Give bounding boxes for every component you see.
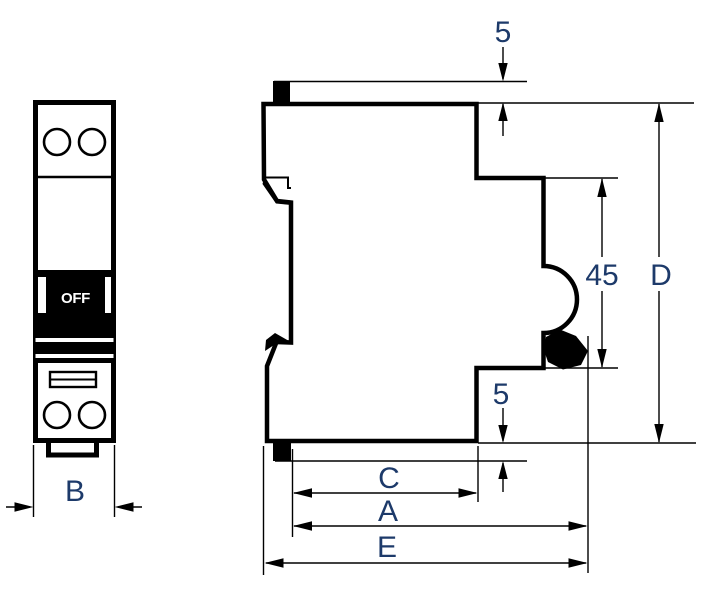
dim-b-arrow-left [15,502,34,511]
dim-e: E [265,531,588,568]
dim-45-arrow-up [597,178,606,197]
dim-a-arrow-right [569,521,588,530]
toggle-lever-side [544,330,589,370]
dim-e-arrow-left [265,558,284,567]
din-clip-foot-bottom [273,443,291,461]
dim-45: 45 [585,178,618,368]
dim-c-label: C [378,462,400,495]
dim-c: C [293,462,478,498]
dim-45-arrow-down [597,349,606,368]
front-view: OFF B [6,103,142,518]
front-bottom-tab [49,441,97,455]
dim-d-label: D [650,259,672,292]
dim-bottom-5: 5 [493,378,510,492]
dim-bot5-label: 5 [493,378,510,411]
dim-d-arrow-down [654,424,663,443]
dim-c-arrow-right [459,488,478,497]
breaker-dimension-drawing: OFF B [0,0,714,614]
dim-b-arrow-right [115,502,134,511]
dim-a-arrow-left [293,521,312,530]
dim-top-5: 5 [495,16,512,136]
dim-d: D [650,103,672,443]
dim-bot5-arrow-down [498,425,507,443]
side-view: 5 45 D 5 [263,16,697,575]
dim-e-arrow-right [569,558,588,567]
dim-d-arrow-up [654,103,663,122]
dim-top5-arrow-down [498,63,507,82]
dim-top5-arrow-up [498,103,507,122]
dim-b-label: B [65,475,85,508]
dim-bot5-arrow-up [498,461,507,479]
dim-a-label: A [378,495,398,528]
dim-45-label: 45 [585,259,618,292]
dim-e-label: E [377,531,397,564]
dim-c-arrow-left [293,488,312,497]
din-clip-foot-top [273,81,290,102]
dim-top5-label: 5 [495,16,512,49]
toggle-state-label: OFF [61,290,90,307]
dim-a: A [293,495,588,531]
side-profile-outline [264,104,577,441]
